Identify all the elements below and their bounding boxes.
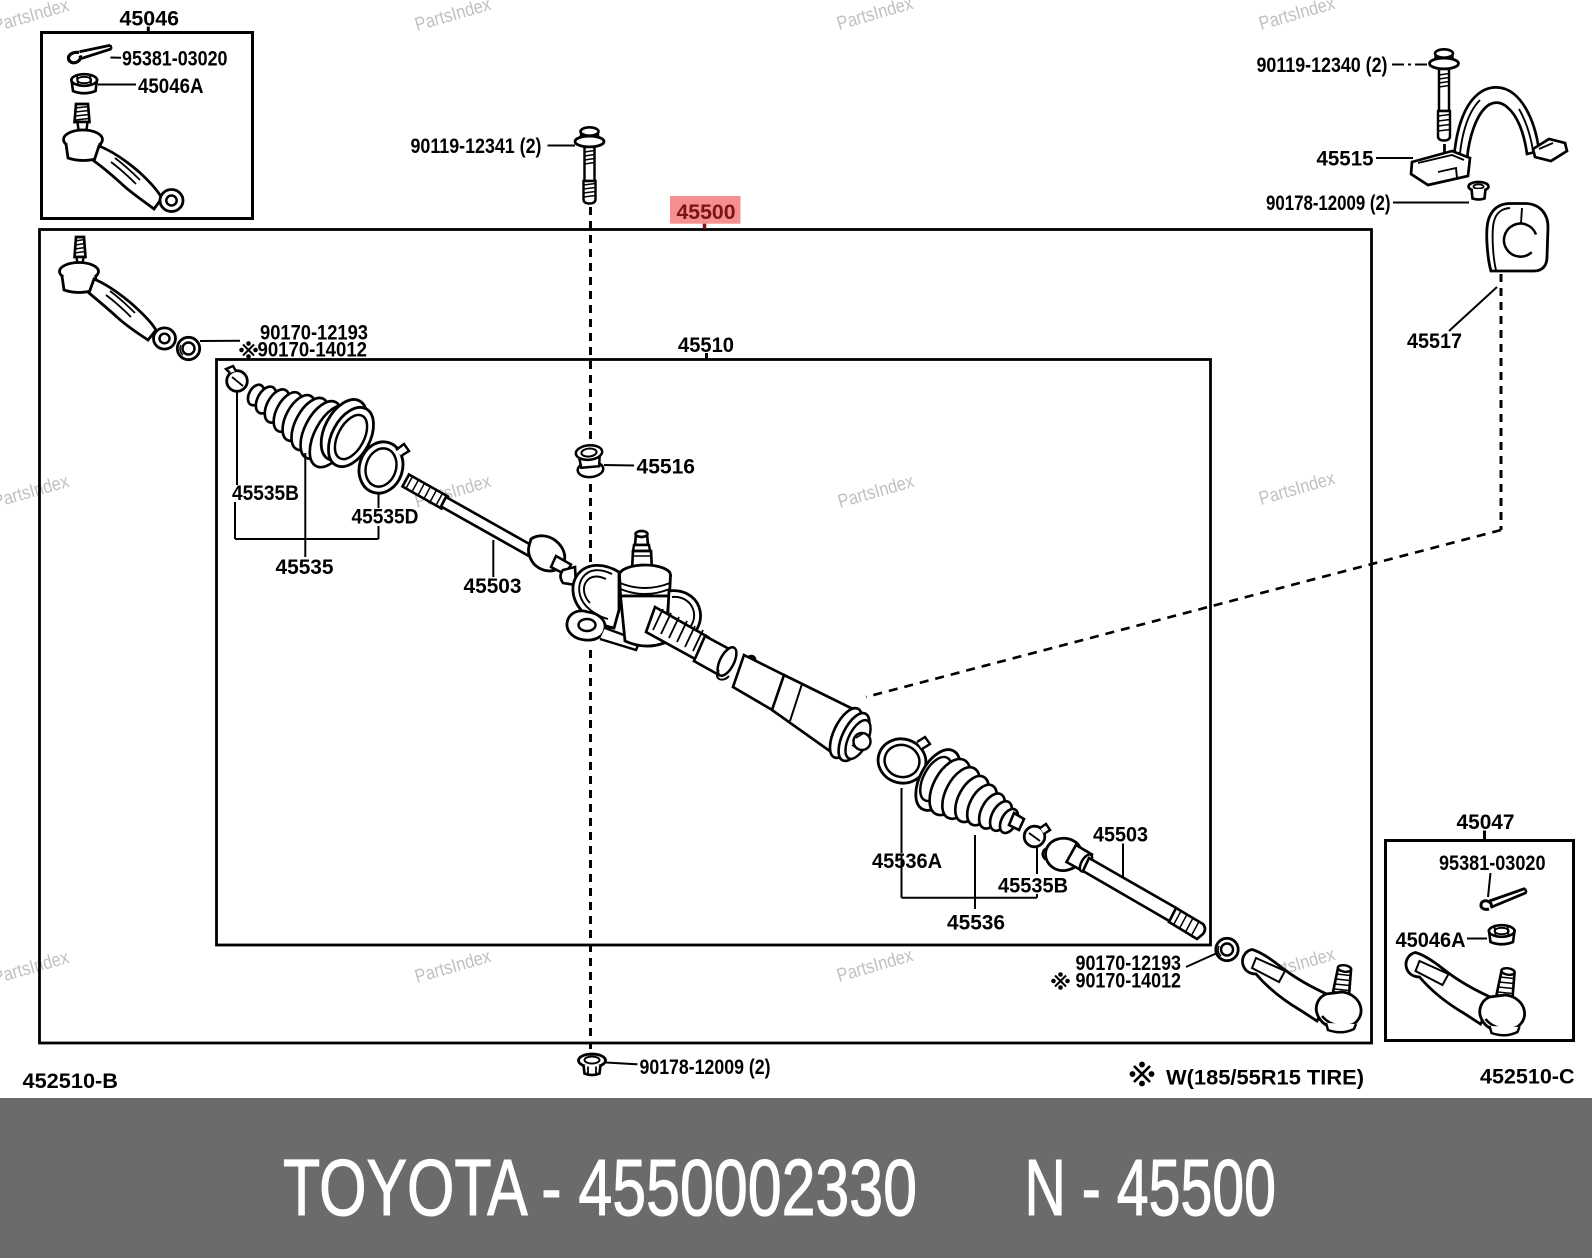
svg-text:90170-14012: 90170-14012 <box>258 339 368 362</box>
svg-text:90178-12009 (2): 90178-12009 (2) <box>640 1056 771 1079</box>
svg-text:90178-12009 (2): 90178-12009 (2) <box>1266 192 1391 215</box>
svg-text:45535D: 45535D <box>352 506 419 529</box>
svg-text:45535: 45535 <box>276 556 334 579</box>
svg-text:45503: 45503 <box>464 575 522 598</box>
svg-text:95381-03020: 95381-03020 <box>1439 852 1546 875</box>
svg-text:45516: 45516 <box>637 456 696 479</box>
svg-text:N - 45500: N - 45500 <box>1025 1143 1277 1232</box>
svg-text:45515: 45515 <box>1317 148 1374 171</box>
svg-text:45503: 45503 <box>1093 824 1148 847</box>
svg-text:45046A: 45046A <box>138 75 204 98</box>
svg-text:452510-B: 452510-B <box>23 1070 119 1093</box>
svg-text:45536A: 45536A <box>872 850 942 873</box>
svg-text:45517: 45517 <box>1407 330 1462 353</box>
svg-text:95381-03020: 95381-03020 <box>122 48 228 71</box>
svg-text:90119-12341 (2): 90119-12341 (2) <box>411 135 542 158</box>
svg-text:TOYOTA - 4550002330: TOYOTA - 4550002330 <box>283 1143 917 1232</box>
svg-text:45500: 45500 <box>677 201 736 224</box>
svg-text:90119-12340 (2): 90119-12340 (2) <box>1257 54 1388 77</box>
svg-text:45535B: 45535B <box>998 875 1068 898</box>
svg-text:45046A: 45046A <box>1396 929 1466 952</box>
svg-text:90170-14012: 90170-14012 <box>1076 970 1182 993</box>
svg-text:45535B: 45535B <box>232 482 299 505</box>
svg-text:W(185/55R15 TIRE): W(185/55R15 TIRE) <box>1166 1067 1364 1090</box>
svg-text:45536: 45536 <box>947 912 1005 935</box>
svg-text:452510-C: 452510-C <box>1480 1066 1575 1089</box>
